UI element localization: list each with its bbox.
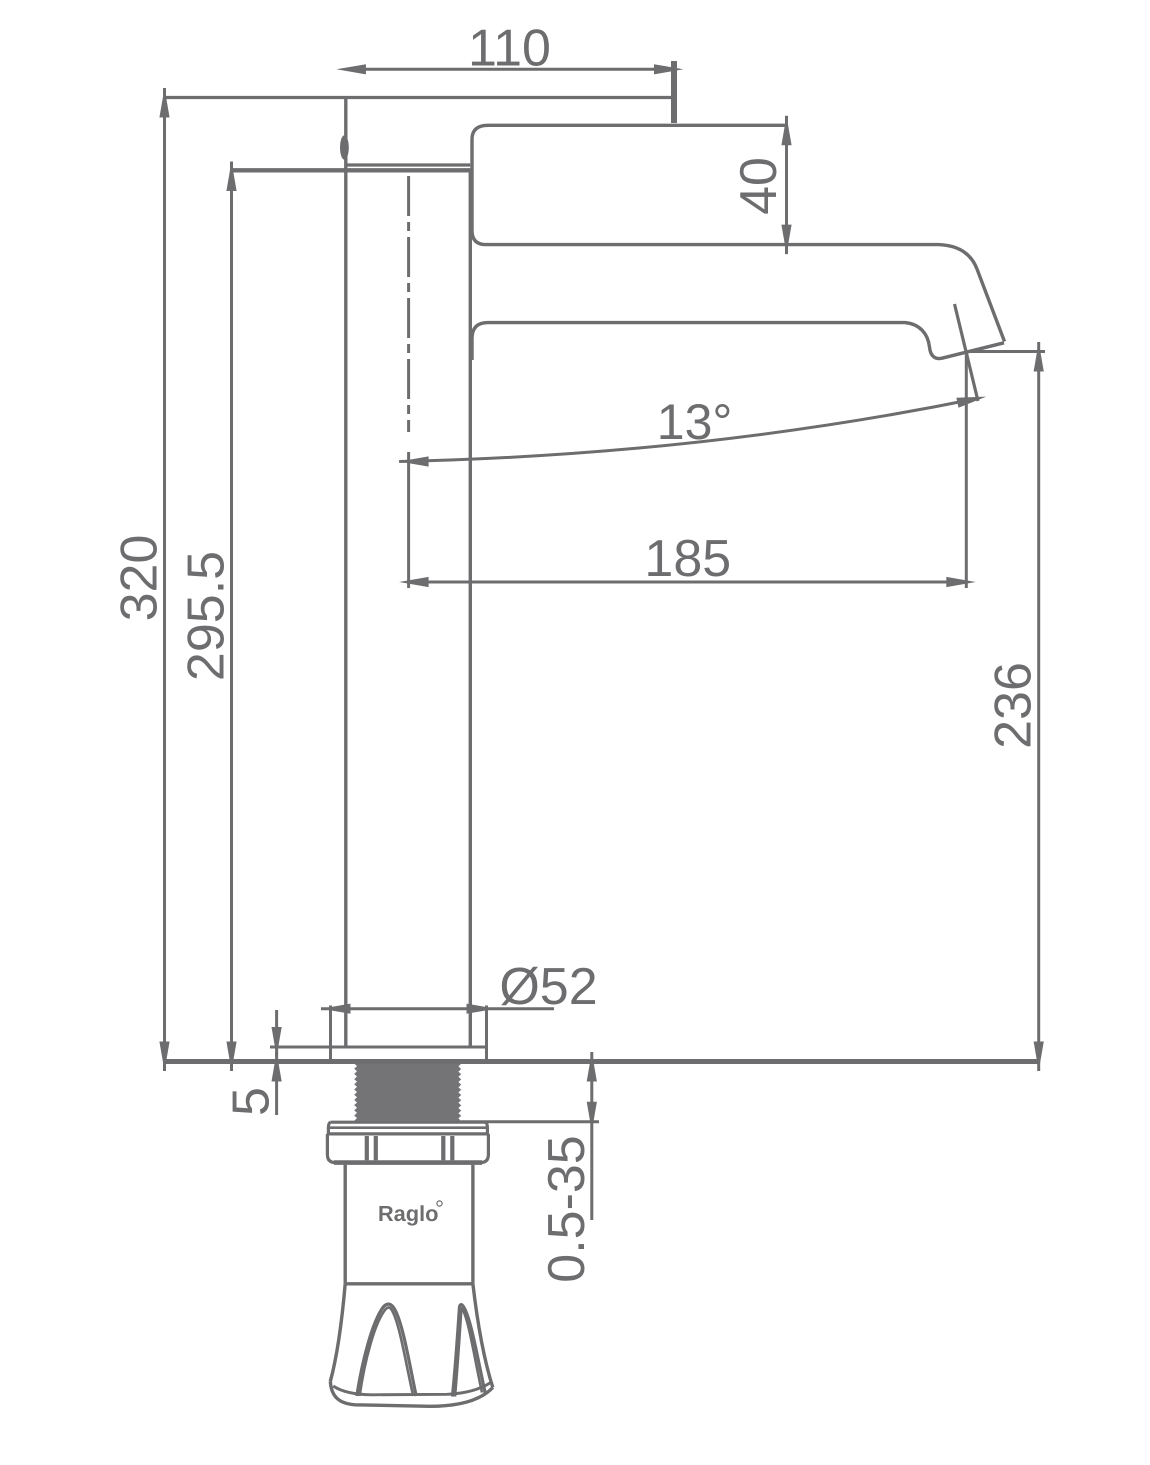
svg-text:5: 5 bbox=[223, 1087, 281, 1116]
svg-text:236: 236 bbox=[985, 662, 1043, 749]
svg-text:110: 110 bbox=[468, 20, 551, 78]
svg-text:295.5: 295.5 bbox=[178, 551, 236, 681]
svg-text:0.5-35: 0.5-35 bbox=[538, 1135, 596, 1282]
svg-text:185: 185 bbox=[644, 530, 731, 588]
svg-text:40: 40 bbox=[730, 157, 788, 215]
svg-text:Ø52: Ø52 bbox=[499, 958, 597, 1016]
svg-text:13°: 13° bbox=[657, 394, 733, 450]
svg-text:320: 320 bbox=[111, 535, 169, 622]
